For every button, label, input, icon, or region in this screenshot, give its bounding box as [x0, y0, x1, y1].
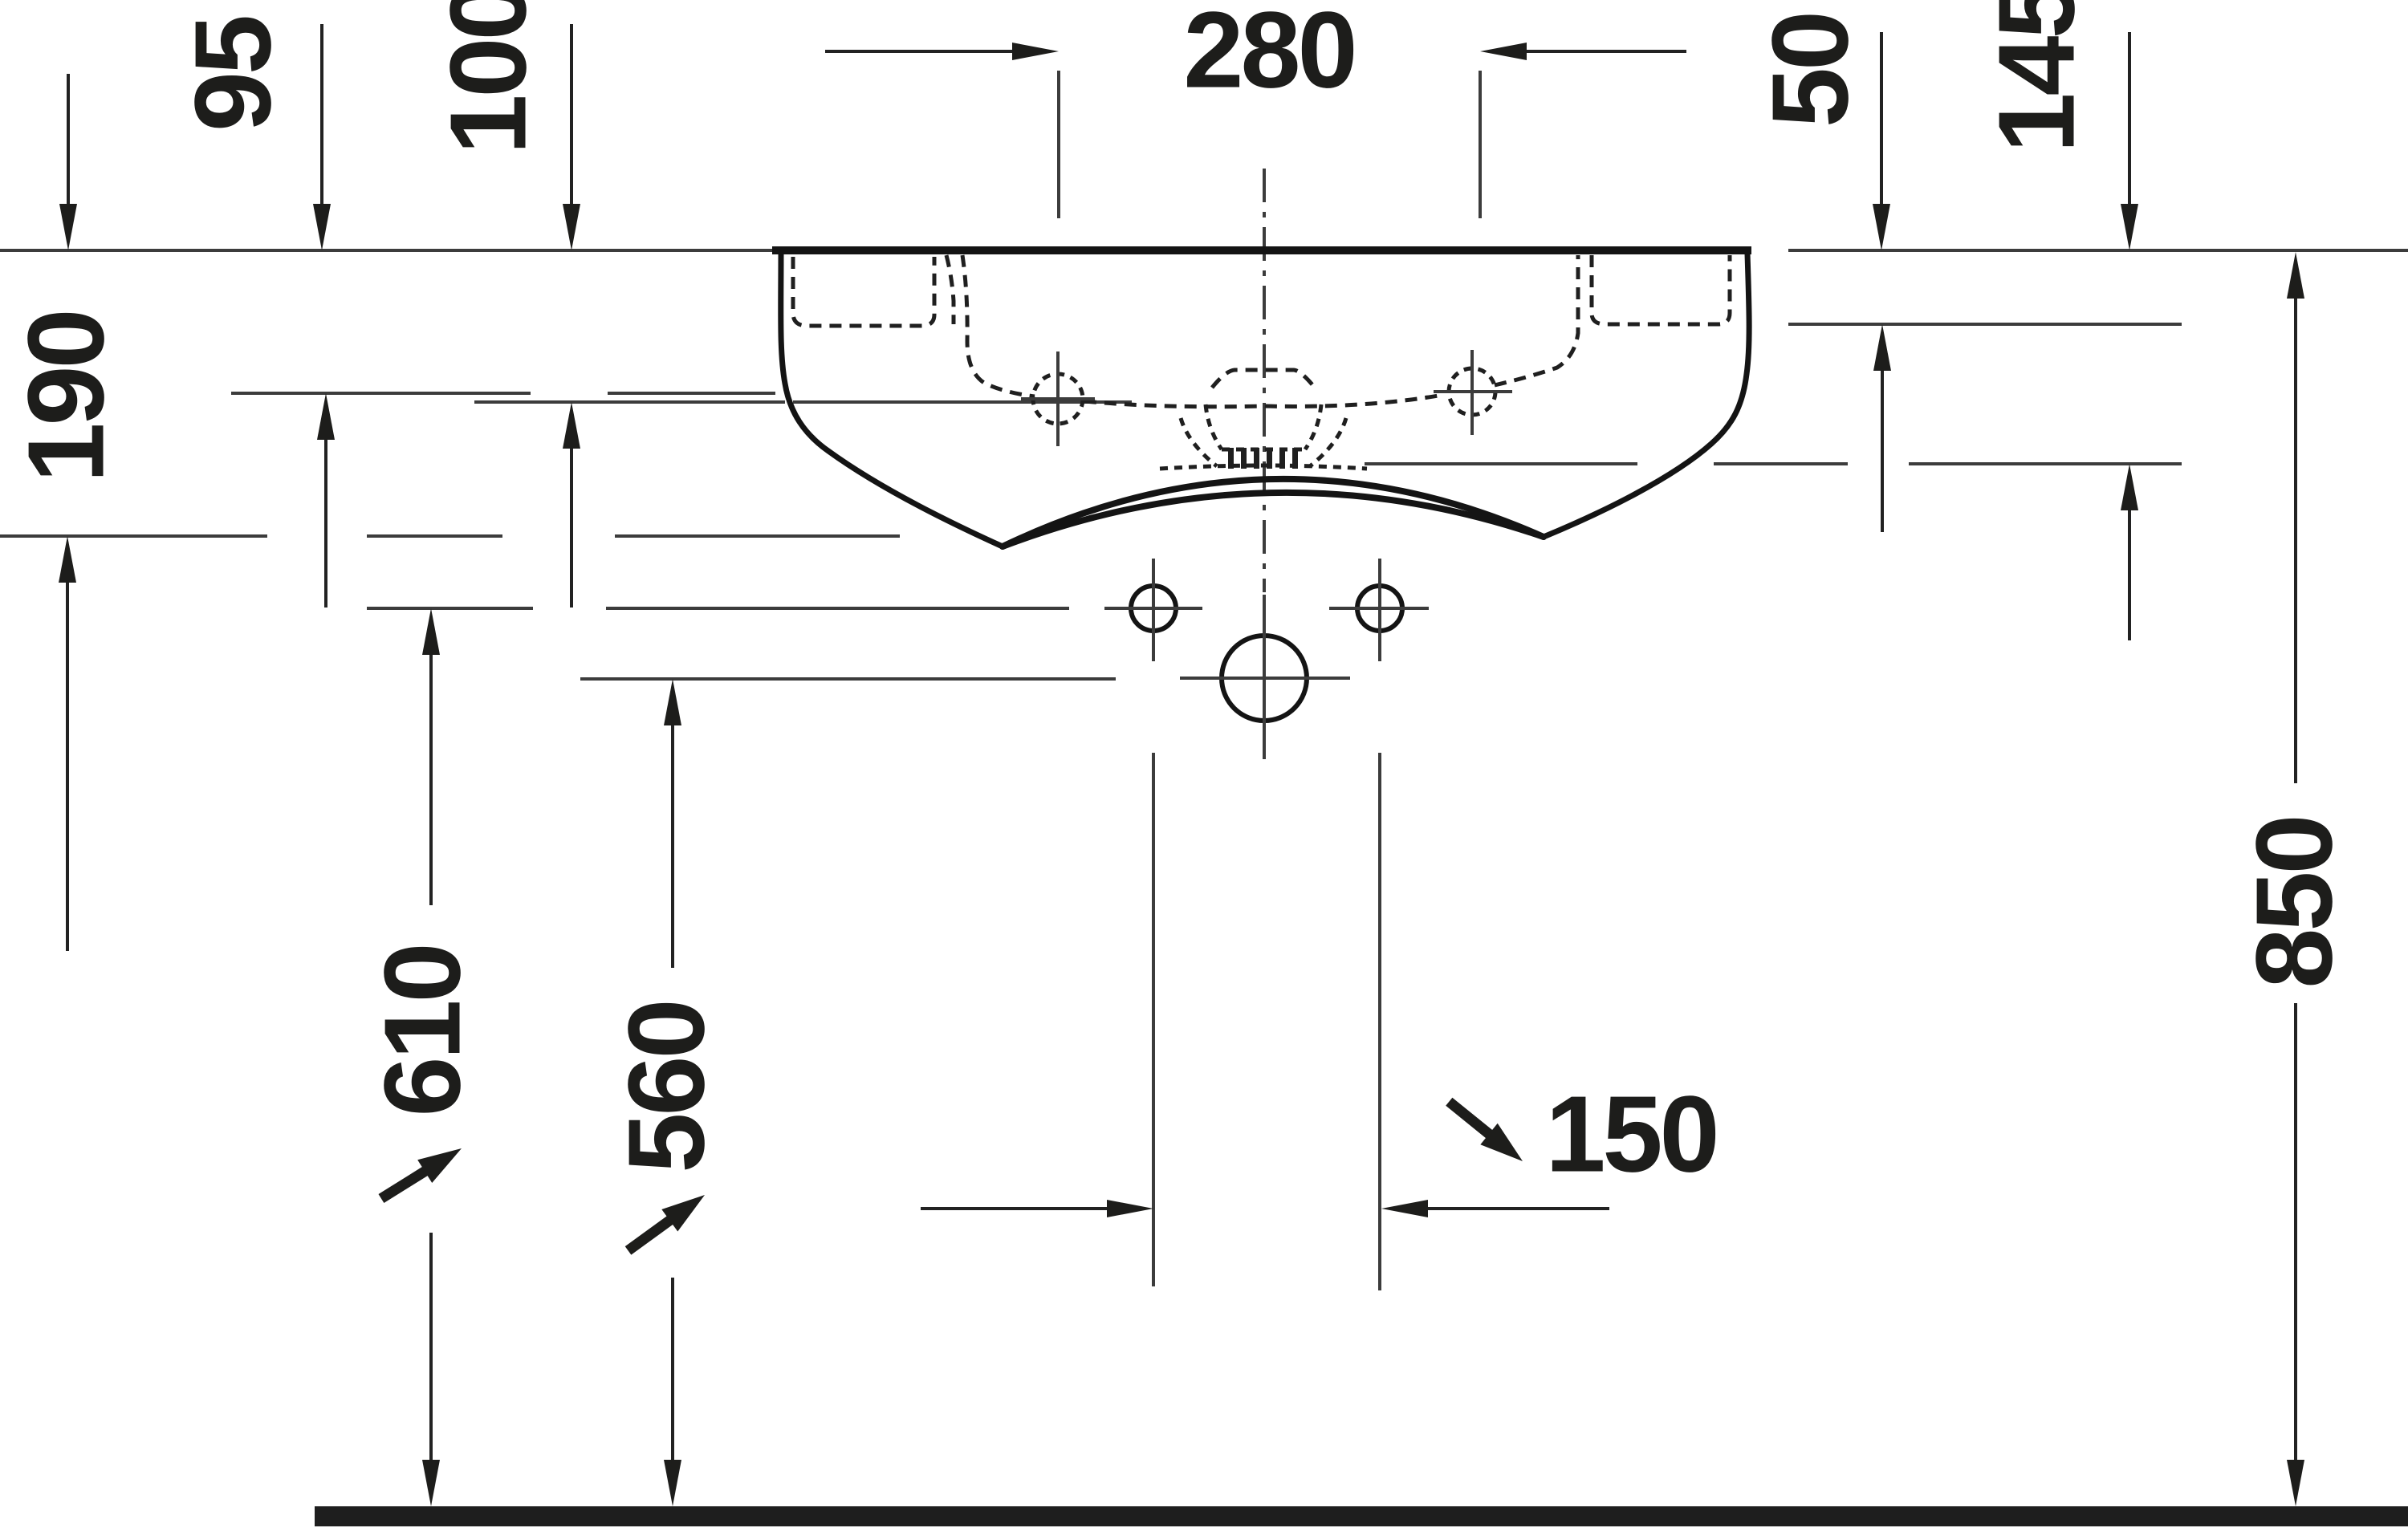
washbasin-dimension-drawing: 280 95 100 190 50 145 850	[0, 0, 2408, 1536]
fixing-hole-right	[1329, 559, 1429, 1290]
soap-dish-right-dashed	[1592, 255, 1730, 324]
dim-label-100: 100	[428, 0, 549, 155]
floor-bar	[315, 1506, 2408, 1526]
dim-label-560: 560	[606, 1002, 727, 1172]
dim-label-850: 850	[2234, 817, 2355, 988]
fixing-hole-left	[1104, 559, 1202, 1286]
drain-hole	[1180, 595, 1350, 759]
leader-arrow-150	[1441, 1091, 1531, 1172]
dim-100: 100	[428, 0, 581, 607]
dim-850: 850	[2234, 252, 2355, 1506]
sink-right-edge	[1544, 254, 1749, 537]
faucet-crosshairs	[1021, 350, 1512, 446]
basin-contour-left-dashed	[962, 255, 1035, 396]
leader-arrow-610	[374, 1137, 469, 1210]
dim-label-280: 280	[1183, 0, 1354, 111]
dim-95: 95	[173, 17, 336, 607]
basin-contour-right-dashed	[1495, 255, 1578, 385]
dim-label-150: 150	[1545, 1074, 1716, 1195]
basin-wall-left-dashed	[946, 255, 954, 324]
dim-label-610: 610	[362, 945, 483, 1116]
dim-150: 150	[921, 1074, 1717, 1218]
sink-bowl-bottom-curve	[1003, 479, 1544, 547]
dim-145: 145	[1976, 0, 2139, 640]
dim-label-50: 50	[1750, 14, 1871, 128]
soap-dish-left-dashed	[793, 257, 934, 326]
dim-610: 610	[362, 608, 483, 1506]
dim-label-145: 145	[1976, 0, 2097, 153]
dim-190: 190	[6, 74, 127, 951]
dim-280: 280	[825, 0, 1686, 218]
dim-560: 560	[606, 679, 727, 1506]
dim-label-190: 190	[6, 311, 127, 482]
dim-label-95: 95	[173, 17, 294, 132]
dim-50: 50	[1750, 14, 1892, 532]
sink-left-edge	[781, 254, 1003, 547]
leader-arrow-560	[620, 1184, 713, 1262]
